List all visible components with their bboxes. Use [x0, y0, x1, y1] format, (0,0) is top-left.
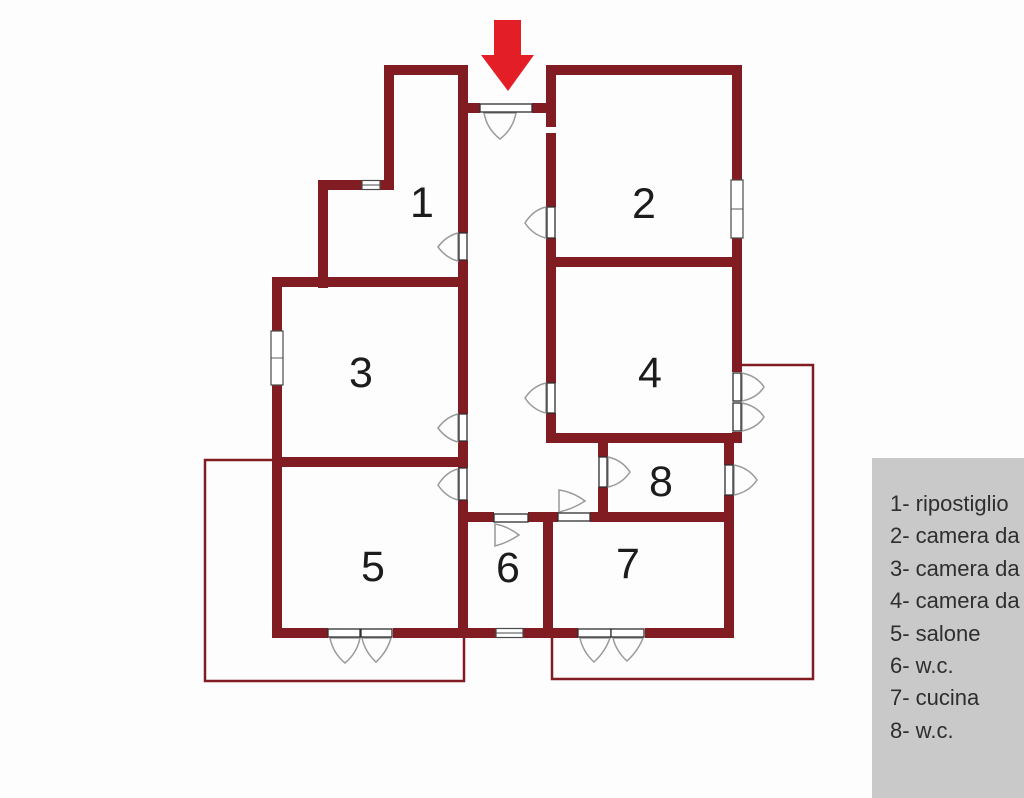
floorplan-canvas: 1 2 3 4 5 6 7 8: [0, 0, 1024, 768]
legend-item-7: 7- cucina: [890, 682, 1024, 714]
door-leaf: [328, 629, 360, 637]
door-swing-icon: [742, 403, 764, 431]
wall-segment: [724, 443, 734, 465]
wall-segment: [598, 443, 608, 457]
door-swing-icon: [742, 373, 764, 401]
wall-segment: [546, 133, 556, 207]
wall-segment: [272, 385, 282, 638]
room-label-5: 5: [361, 543, 385, 591]
door-swing-icon: [734, 465, 757, 495]
window-room-1: [362, 181, 380, 190]
door-swing-icon: [330, 638, 360, 663]
door-room-7: [558, 490, 590, 521]
wall-segment: [272, 277, 282, 331]
door-entrance: [480, 104, 532, 139]
door-swing-icon: [438, 414, 458, 442]
door-room-6: [494, 514, 528, 546]
door-leaf: [547, 383, 555, 413]
wall-segment: [546, 65, 742, 75]
wall-segment: [272, 628, 328, 638]
room-label-2: 2: [632, 180, 656, 228]
wall-segment: [458, 260, 468, 414]
door-swing-icon: [438, 469, 458, 500]
wall-segment: [458, 103, 480, 113]
legend-item-2: 2- camera da: [890, 520, 1024, 552]
door-room-4-balcony-lower: [733, 403, 764, 431]
door-swing-icon: [559, 490, 585, 512]
arrow-shaft: [494, 20, 521, 57]
door-room-5-terrace-right: [361, 629, 392, 662]
wall-segment: [458, 512, 494, 522]
door-leaf: [494, 514, 528, 522]
door-room-5: [438, 468, 467, 500]
door-room-3: [438, 414, 467, 442]
wall-segment: [272, 277, 468, 287]
wall-segment: [393, 628, 468, 638]
legend-item-5: 5- salone: [890, 618, 1024, 650]
wall-segment: [546, 267, 556, 383]
wall-segment: [546, 433, 742, 443]
door-leaf: [599, 457, 607, 487]
wall-segment: [645, 628, 734, 638]
wall-segment: [732, 267, 742, 372]
door-leaf: [459, 414, 467, 441]
door-swing-icon: [438, 233, 458, 261]
wall-segment: [724, 520, 734, 638]
door-room-4-balcony-upper: [733, 373, 764, 401]
wall-segment: [384, 65, 394, 190]
door-leaf: [480, 104, 532, 112]
wall-segment: [546, 257, 742, 267]
door-swing-icon: [613, 638, 643, 661]
legend-item-8: 8- w.c.: [890, 715, 1024, 747]
door-leaf: [459, 468, 467, 500]
door-room-8-balcony: [725, 465, 757, 495]
door-swing-icon: [362, 638, 391, 662]
wall-segment: [543, 628, 578, 638]
wall-segment: [732, 65, 742, 180]
door-swing-icon: [495, 524, 519, 546]
door-room-2: [525, 207, 555, 238]
door-room-8: [599, 457, 630, 487]
door-swing-icon: [525, 207, 546, 238]
room-label-1: 1: [410, 179, 434, 227]
room-label-8: 8: [649, 458, 673, 506]
door-room-7-terrace-left: [578, 629, 611, 662]
door-swing-icon: [484, 113, 516, 139]
room-label-4: 4: [638, 349, 662, 397]
room-label-7: 7: [616, 540, 640, 588]
wall-segment: [318, 180, 328, 288]
door-swing-icon: [608, 457, 630, 487]
room-label-6: 6: [496, 544, 520, 592]
legend-item-1: 1- ripostiglio: [890, 488, 1024, 520]
window-room-2: [731, 180, 743, 238]
wall-segment: [543, 512, 553, 638]
door-room-5-terrace-left: [328, 629, 360, 663]
door-leaf: [733, 403, 741, 431]
door-room-7-terrace-right: [611, 629, 644, 661]
room-label-3: 3: [349, 349, 373, 397]
door-leaf: [547, 207, 555, 238]
wall-segment: [380, 180, 394, 190]
door-room-1: [438, 233, 467, 261]
window-room-3: [271, 331, 283, 385]
entrance-arrow-icon: [481, 20, 534, 91]
wall-joint: [545, 127, 557, 133]
door-swing-icon: [580, 638, 610, 662]
legend-item-6: 6- w.c.: [890, 650, 1024, 682]
legend-box: 1- ripostiglio 2- camera da 3- camera da…: [872, 458, 1024, 798]
door-leaf: [611, 629, 644, 637]
door-swing-icon: [525, 383, 546, 413]
window-room-6: [496, 629, 523, 638]
legend-item-4: 4- camera da: [890, 585, 1024, 617]
door-leaf: [459, 233, 467, 260]
door-leaf: [733, 373, 741, 401]
wall-segment: [272, 457, 468, 467]
arrow-head: [481, 55, 534, 91]
door-leaf: [361, 629, 392, 637]
door-room-4: [525, 383, 555, 413]
wall-segment: [458, 65, 468, 233]
door-leaf: [558, 513, 590, 521]
door-leaf: [725, 465, 733, 495]
legend-item-3: 3- camera da: [890, 553, 1024, 585]
wall-segment: [458, 441, 468, 468]
door-leaf: [578, 629, 611, 637]
wall-segment: [590, 512, 734, 522]
wall-segment: [384, 65, 468, 75]
